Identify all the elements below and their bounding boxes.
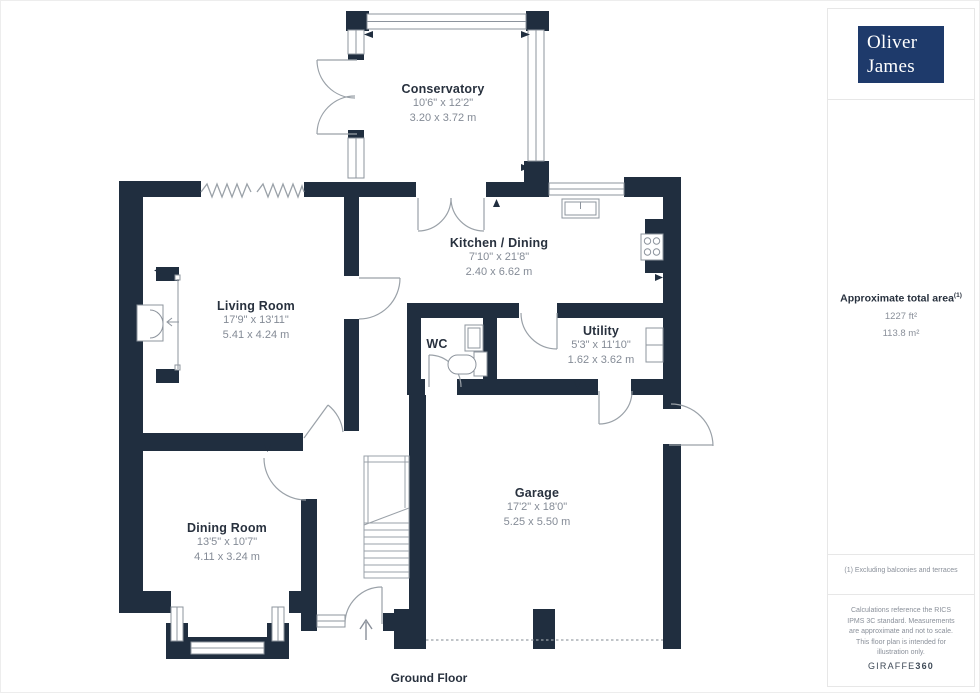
floor-title: Ground Floor	[391, 671, 468, 685]
stairs	[364, 456, 409, 578]
disclaimer-text: Calculations reference the RICS IPMS 3C …	[842, 606, 960, 659]
entrance-arrow	[360, 620, 372, 640]
room-label-utility: Utility 5'3" x 11'10" 1.62 x 3.62 m	[568, 324, 635, 367]
kitchen-sink	[562, 199, 599, 218]
total-area-title: Approximate total area(1)	[828, 292, 974, 305]
wc-sink	[465, 325, 483, 351]
room-label-wc: WC	[426, 337, 447, 351]
total-area-block: Approximate total area(1) 1227 ft² 113.8…	[828, 292, 974, 339]
area-footnote: (1) Excluding balconies and terraces	[828, 567, 974, 574]
hob	[641, 234, 663, 260]
room-label-conservatory: Conservatory 10'6" x 12'2" 3.20 x 3.72 m	[402, 82, 485, 125]
wall-break-zigzag	[201, 184, 304, 197]
total-area-ft: 1227 ft²	[828, 311, 974, 322]
fireplace	[137, 305, 179, 341]
toilet	[448, 352, 487, 376]
total-area-m: 113.8 m²	[828, 328, 974, 339]
floorplan-page: Conservatory 10'6" x 12'2" 3.20 x 3.72 m…	[0, 0, 980, 693]
floorplan-area: Conservatory 10'6" x 12'2" 3.20 x 3.72 m…	[1, 1, 827, 693]
giraffe360-logo: GIRAFFE360	[828, 661, 974, 671]
room-label-dining-room: Dining Room 13'5" x 10'7" 4.11 x 3.24 m	[187, 521, 267, 564]
room-label-living-room: Living Room 17'9" x 13'11" 5.41 x 4.24 m	[217, 299, 295, 342]
info-sidebar: Oliver James Approximate total area(1) 1…	[827, 8, 975, 687]
room-label-kitchen-dining: Kitchen / Dining 7'10" x 21'8" 2.40 x 6.…	[450, 236, 548, 279]
sidebar-divider-2	[828, 554, 974, 555]
sidebar-divider-1	[828, 99, 974, 100]
utility-appliance	[646, 328, 663, 362]
logo-line-2: James	[867, 55, 944, 79]
oliver-james-logo: Oliver James	[858, 26, 944, 83]
logo-line-1: Oliver	[867, 31, 944, 55]
room-label-garage: Garage 17'2" x 18'0" 5.25 x 5.50 m	[504, 486, 571, 529]
sidebar-divider-3	[828, 594, 974, 595]
